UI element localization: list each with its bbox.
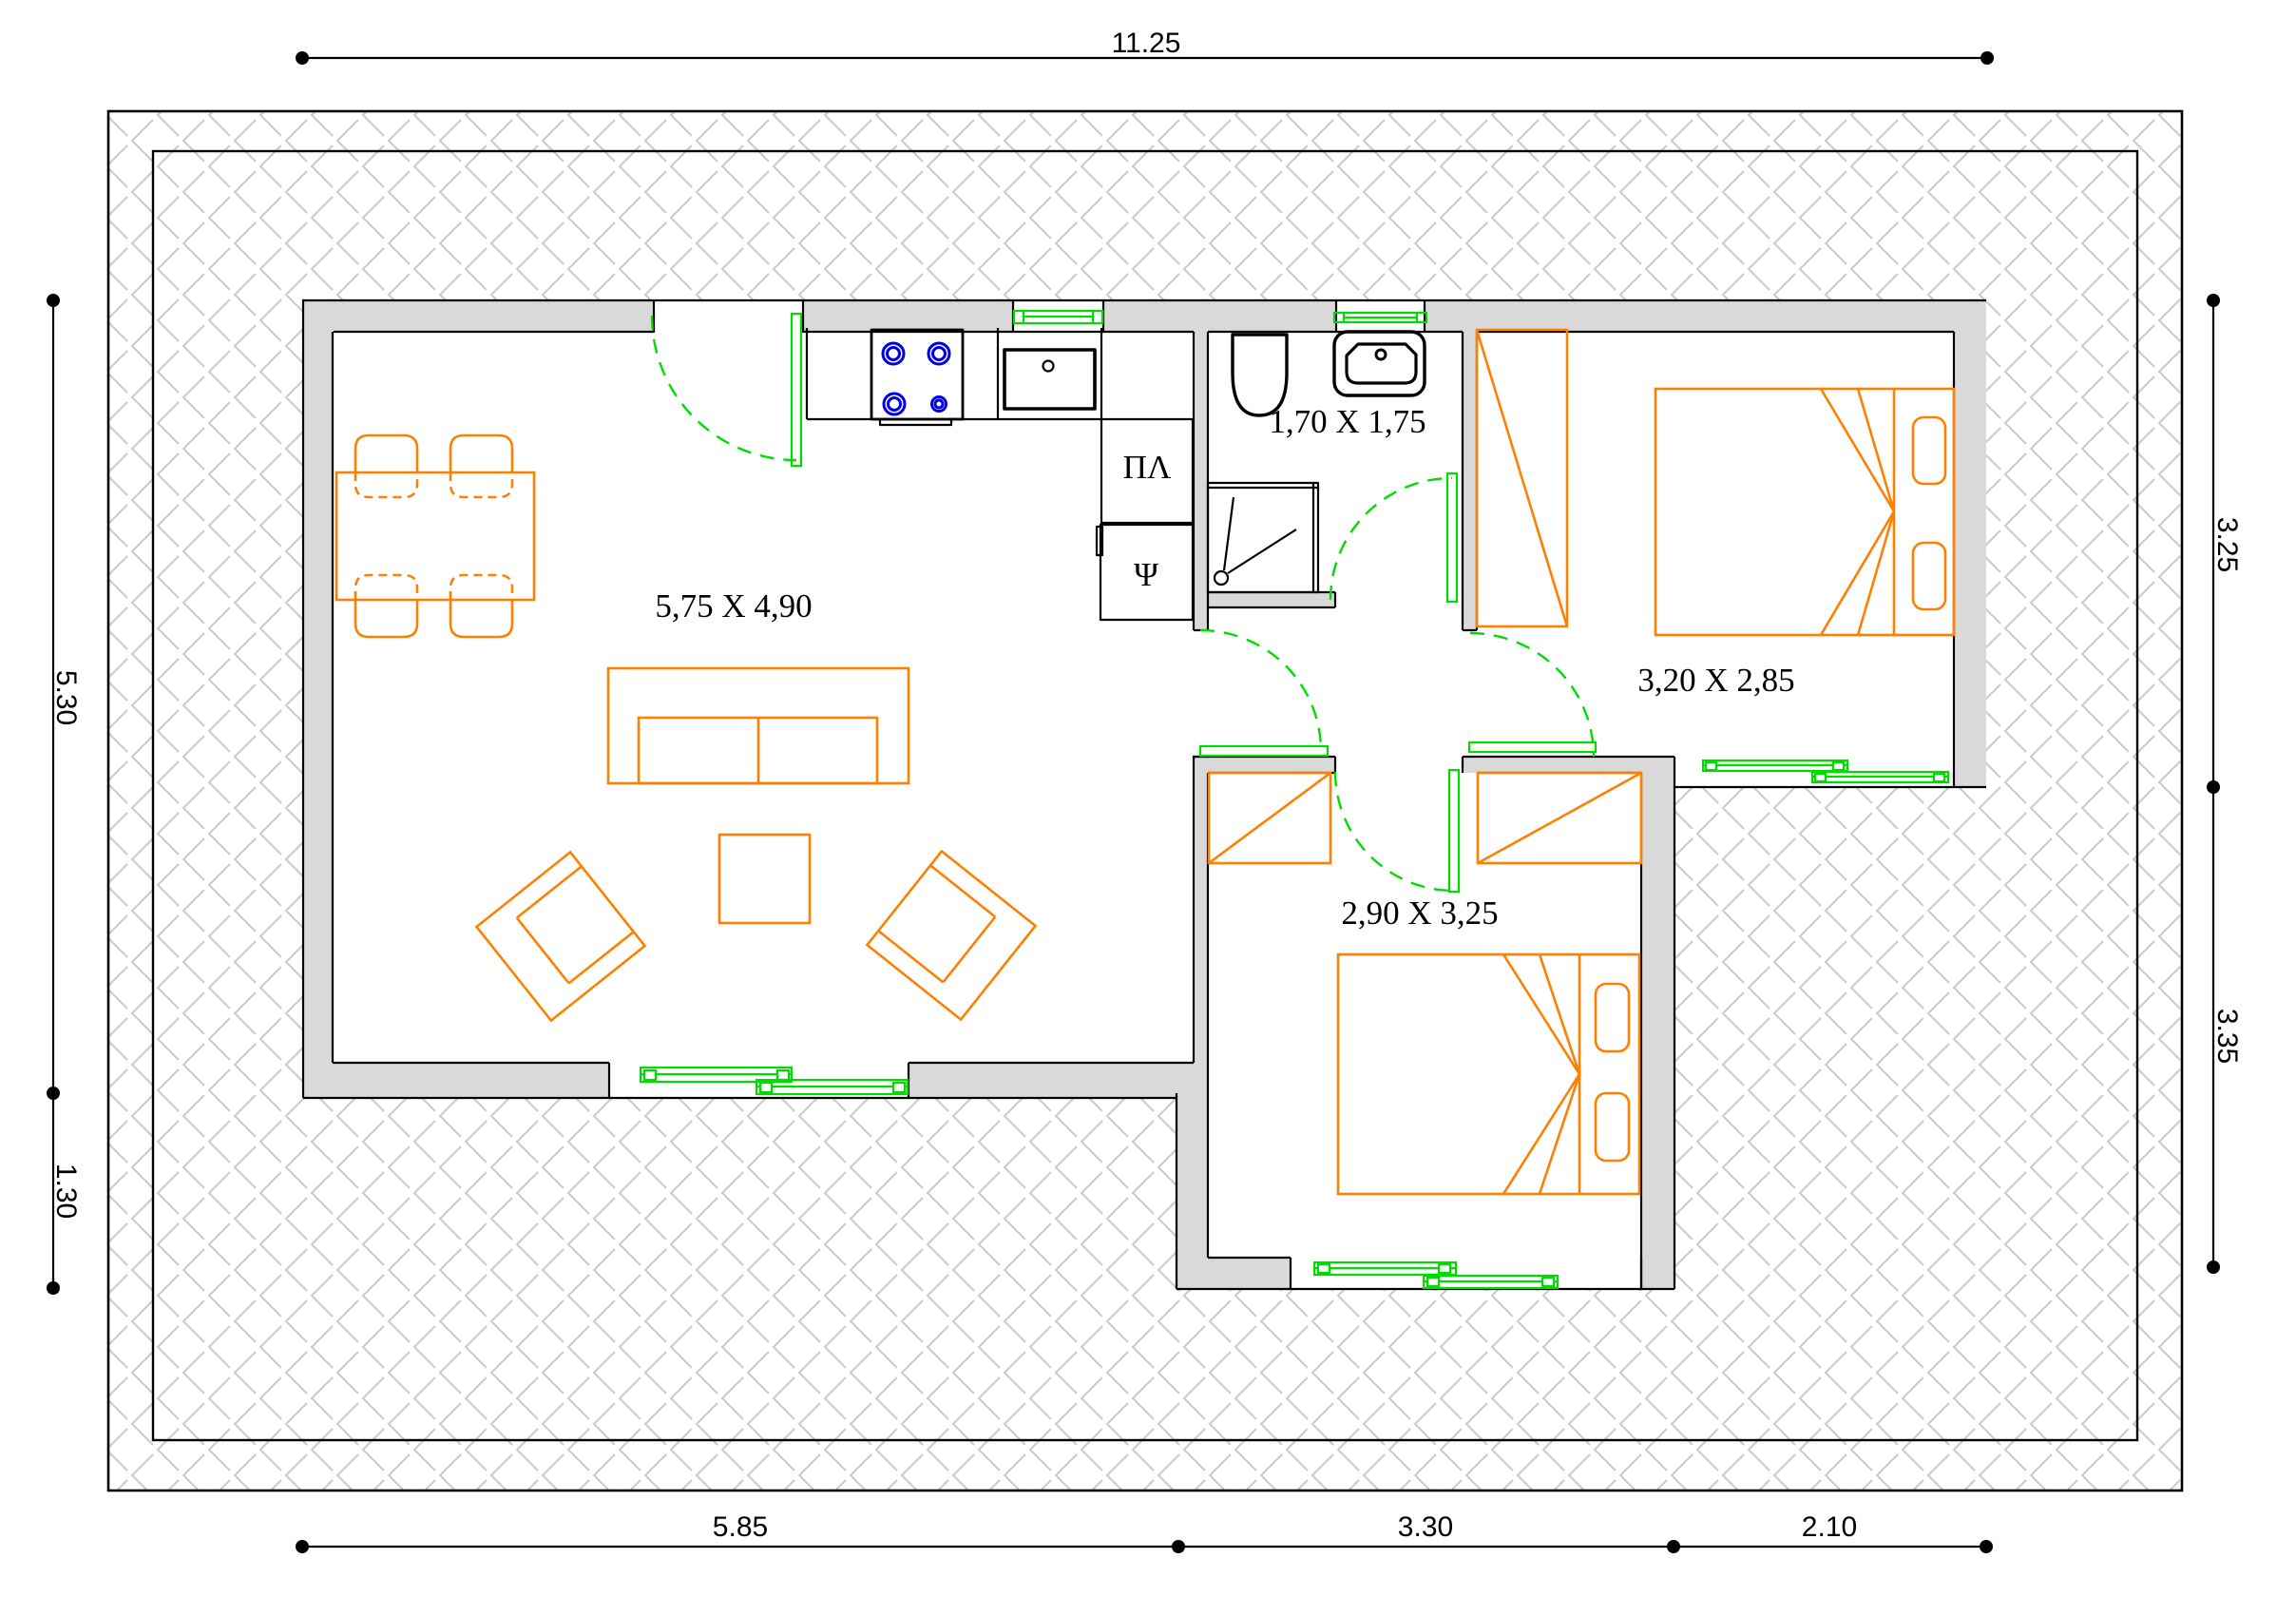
- svg-text:11.25: 11.25: [1112, 28, 1181, 59]
- svg-text:1.30: 1.30: [50, 1164, 82, 1219]
- svg-text:5.30: 5.30: [50, 670, 82, 725]
- svg-text:ΠΛ: ΠΛ: [1123, 449, 1172, 486]
- svg-text:5.85: 5.85: [713, 1511, 768, 1543]
- svg-text:5,75 X 4,90: 5,75 X 4,90: [655, 587, 812, 625]
- svg-text:2,90 X 3,25: 2,90 X 3,25: [1341, 895, 1498, 932]
- svg-text:1,70 X 1,75: 1,70 X 1,75: [1269, 403, 1425, 440]
- svg-text:3.25: 3.25: [2211, 517, 2243, 572]
- svg-text:3.30: 3.30: [1398, 1511, 1453, 1543]
- svg-text:Ψ: Ψ: [1134, 556, 1158, 593]
- svg-text:3.35: 3.35: [2211, 1009, 2243, 1064]
- svg-text:3,20 X 2,85: 3,20 X 2,85: [1637, 662, 1794, 699]
- svg-text:2.10: 2.10: [1802, 1511, 1857, 1543]
